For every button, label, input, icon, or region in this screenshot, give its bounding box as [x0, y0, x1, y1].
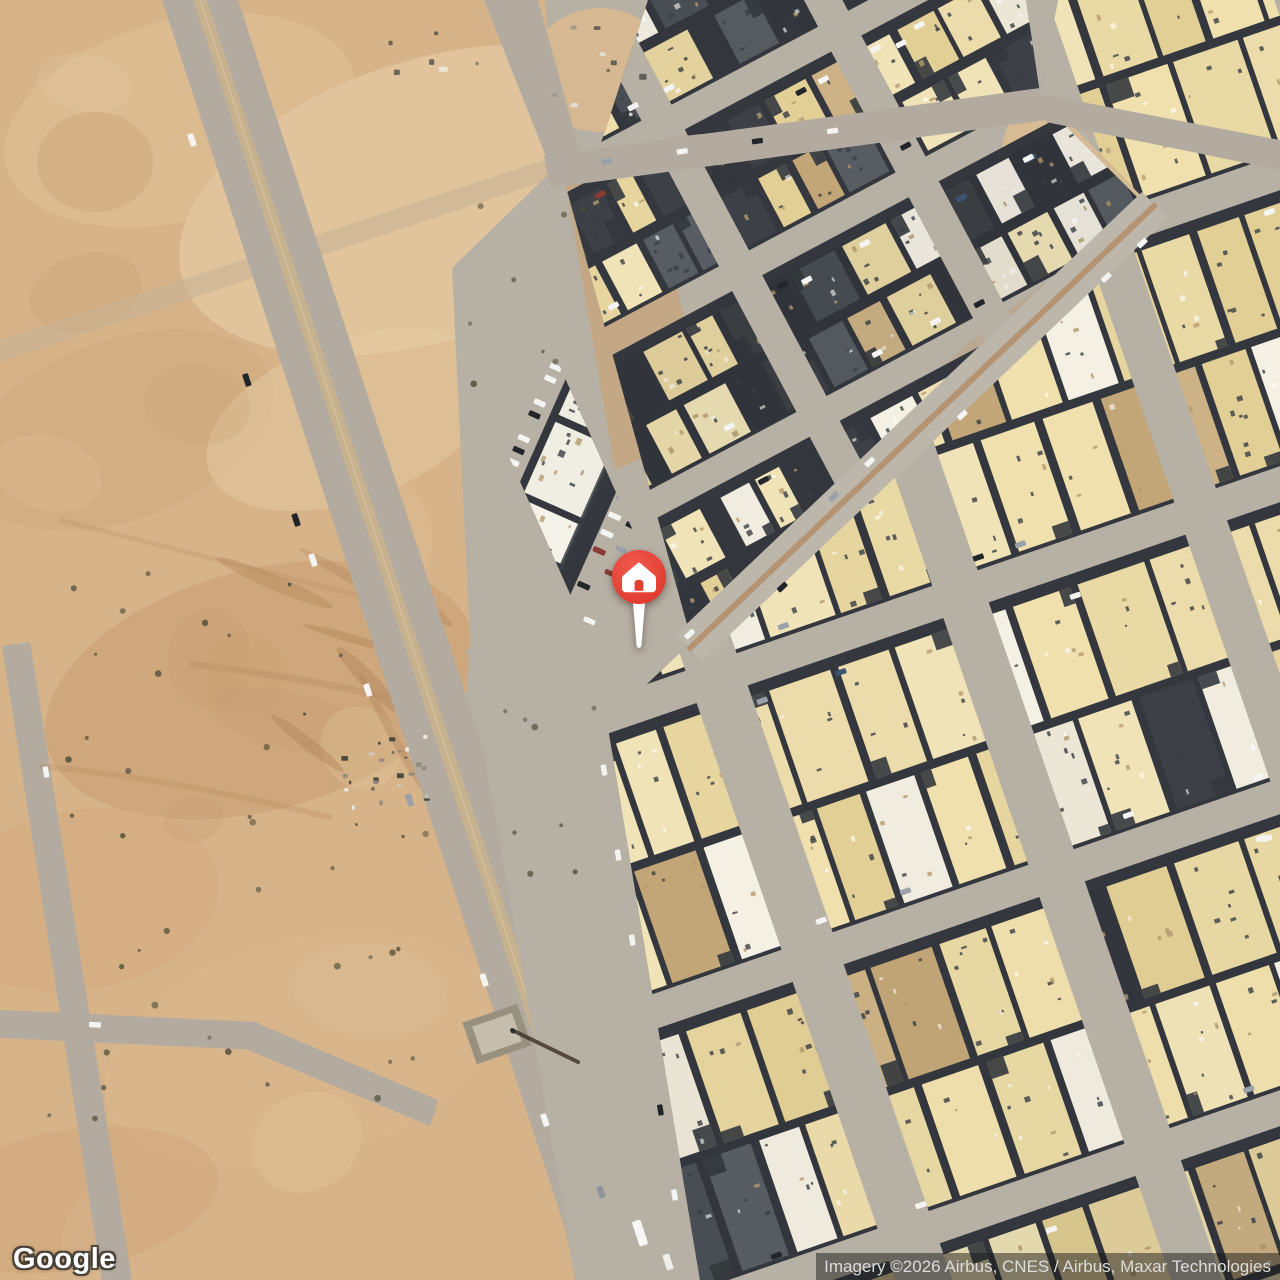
imagery-attribution: Imagery ©2026 Airbus, CNES / Airbus, Max… — [816, 1253, 1280, 1280]
home-location-marker[interactable] — [604, 547, 674, 657]
google-logo[interactable]: Google — [13, 1243, 116, 1276]
satellite-map[interactable]: Google Imagery ©2026 Airbus, CNES / Airb… — [0, 0, 1280, 1280]
marker-stem — [633, 597, 646, 648]
